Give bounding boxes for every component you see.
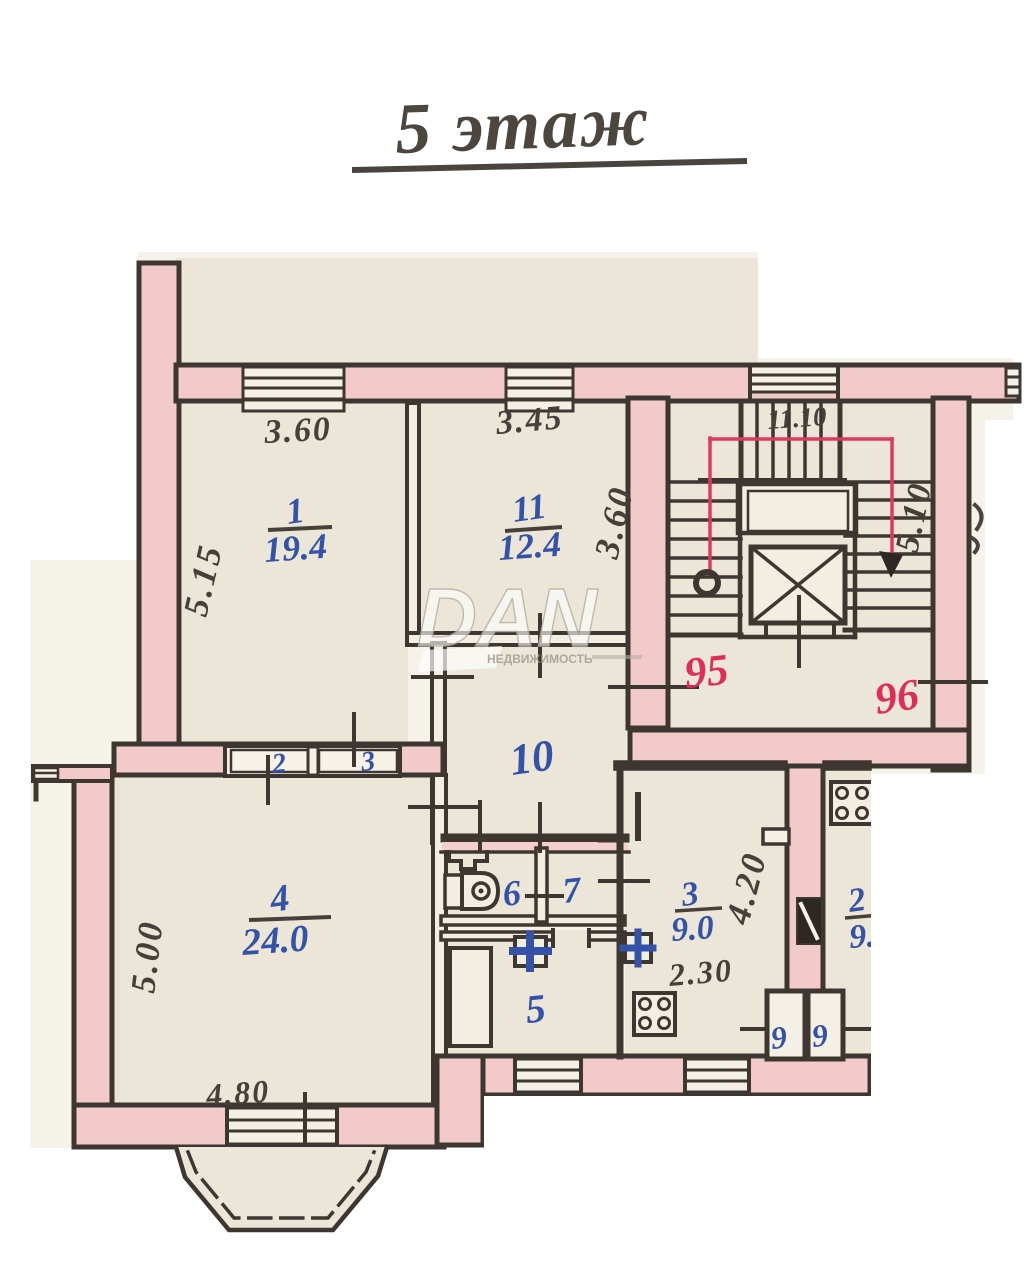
svg-text:11.10: 11.10	[766, 401, 828, 435]
svg-text:12.4: 12.4	[497, 524, 563, 568]
svg-text:24.0: 24.0	[240, 917, 310, 964]
svg-text:НЕДВИЖИМОСТЬ: НЕДВИЖИМОСТЬ	[487, 652, 593, 666]
svg-text:11: 11	[510, 486, 549, 530]
svg-text:3.60: 3.60	[262, 411, 332, 452]
svg-text:19.4: 19.4	[263, 526, 329, 570]
svg-text:10: 10	[507, 730, 557, 785]
svg-text:96: 96	[872, 669, 922, 724]
svg-text:95: 95	[682, 645, 731, 698]
svg-text:2.30: 2.30	[666, 952, 734, 994]
svg-text:4.80: 4.80	[204, 1073, 271, 1113]
svg-text:9.0: 9.0	[670, 909, 715, 949]
svg-text:5 этаж: 5 этаж	[394, 80, 652, 169]
svg-text:3.45: 3.45	[493, 399, 564, 442]
